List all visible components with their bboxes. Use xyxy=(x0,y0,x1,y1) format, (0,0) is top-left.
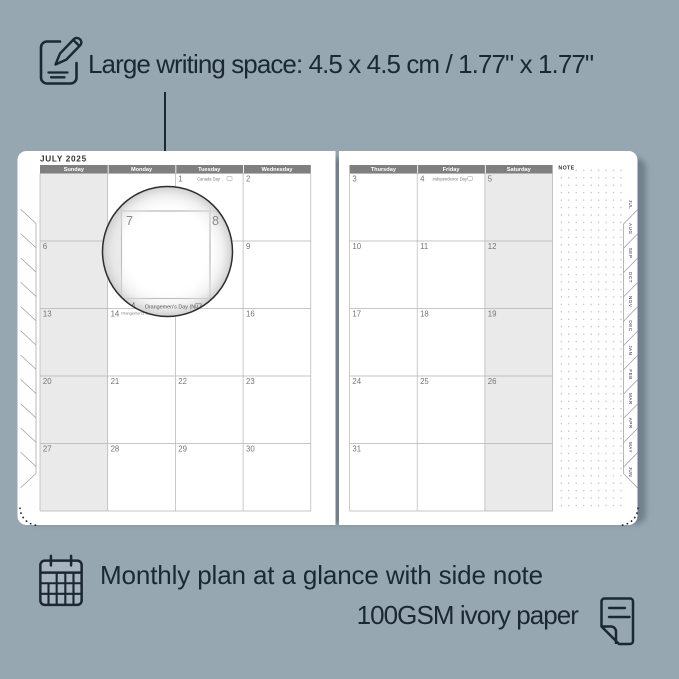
svg-text:MAY: MAY xyxy=(628,442,633,453)
svg-text:30: 30 xyxy=(246,445,255,454)
svg-text:27: 27 xyxy=(43,445,52,454)
svg-text:12: 12 xyxy=(488,242,497,251)
svg-text:9: 9 xyxy=(246,242,250,251)
svg-text:MAR: MAR xyxy=(628,393,633,405)
svg-text:20: 20 xyxy=(43,377,52,386)
svg-text:Canada Day: Canada Day xyxy=(197,176,221,181)
svg-text:APR: APR xyxy=(628,418,633,429)
svg-text:JULY 2025: JULY 2025 xyxy=(40,155,87,164)
svg-text:17: 17 xyxy=(352,310,361,319)
svg-text:22: 22 xyxy=(178,377,187,386)
svg-text:1: 1 xyxy=(178,175,182,184)
svg-text:16: 16 xyxy=(246,310,255,319)
svg-text:29: 29 xyxy=(178,445,187,454)
svg-text:25: 25 xyxy=(420,377,429,386)
svg-text:10: 10 xyxy=(352,242,361,251)
svg-text:21: 21 xyxy=(111,377,120,386)
svg-text:Monday: Monday xyxy=(131,167,153,173)
svg-text:Friday: Friday xyxy=(443,167,461,173)
svg-text:AUG: AUG xyxy=(628,223,633,234)
svg-text:19: 19 xyxy=(488,310,497,319)
svg-text:7: 7 xyxy=(126,214,133,228)
svg-text:Tuesday: Tuesday xyxy=(198,167,221,173)
svg-text:14: 14 xyxy=(111,310,120,319)
svg-text:13: 13 xyxy=(43,310,52,319)
svg-text:24: 24 xyxy=(352,377,361,386)
svg-text:3: 3 xyxy=(352,175,356,184)
svg-text:OCT: OCT xyxy=(628,272,633,283)
svg-text:31: 31 xyxy=(352,445,361,454)
svg-text:Sunday: Sunday xyxy=(64,167,85,173)
svg-text:JUL: JUL xyxy=(628,200,633,210)
svg-text:28: 28 xyxy=(111,445,120,454)
svg-text:JAN: JAN xyxy=(628,345,633,355)
svg-text:4: 4 xyxy=(420,175,425,184)
svg-text:SEP: SEP xyxy=(628,248,633,259)
svg-text:8: 8 xyxy=(212,214,219,228)
svg-text:NOTE: NOTE xyxy=(558,166,574,172)
svg-text:Independence Day: Independence Day xyxy=(433,176,468,181)
svg-text:DEC: DEC xyxy=(628,320,633,331)
svg-text:Saturday: Saturday xyxy=(507,167,532,173)
svg-text:FEB: FEB xyxy=(628,369,633,379)
svg-text:Wednesday: Wednesday xyxy=(261,167,293,173)
svg-text:Thursday: Thursday xyxy=(371,167,397,173)
svg-text:Orangemen's Day (N.I.): Orangemen's Day (N.I.) xyxy=(145,304,202,310)
svg-text:26: 26 xyxy=(488,377,497,386)
svg-text:JUN: JUN xyxy=(628,467,633,477)
svg-text:5: 5 xyxy=(488,175,493,184)
svg-text:23: 23 xyxy=(246,377,255,386)
svg-text:NOV: NOV xyxy=(628,296,633,308)
svg-text:2: 2 xyxy=(246,175,250,184)
svg-text:11: 11 xyxy=(420,242,428,251)
svg-text:18: 18 xyxy=(420,310,429,319)
svg-text:6: 6 xyxy=(43,242,47,251)
